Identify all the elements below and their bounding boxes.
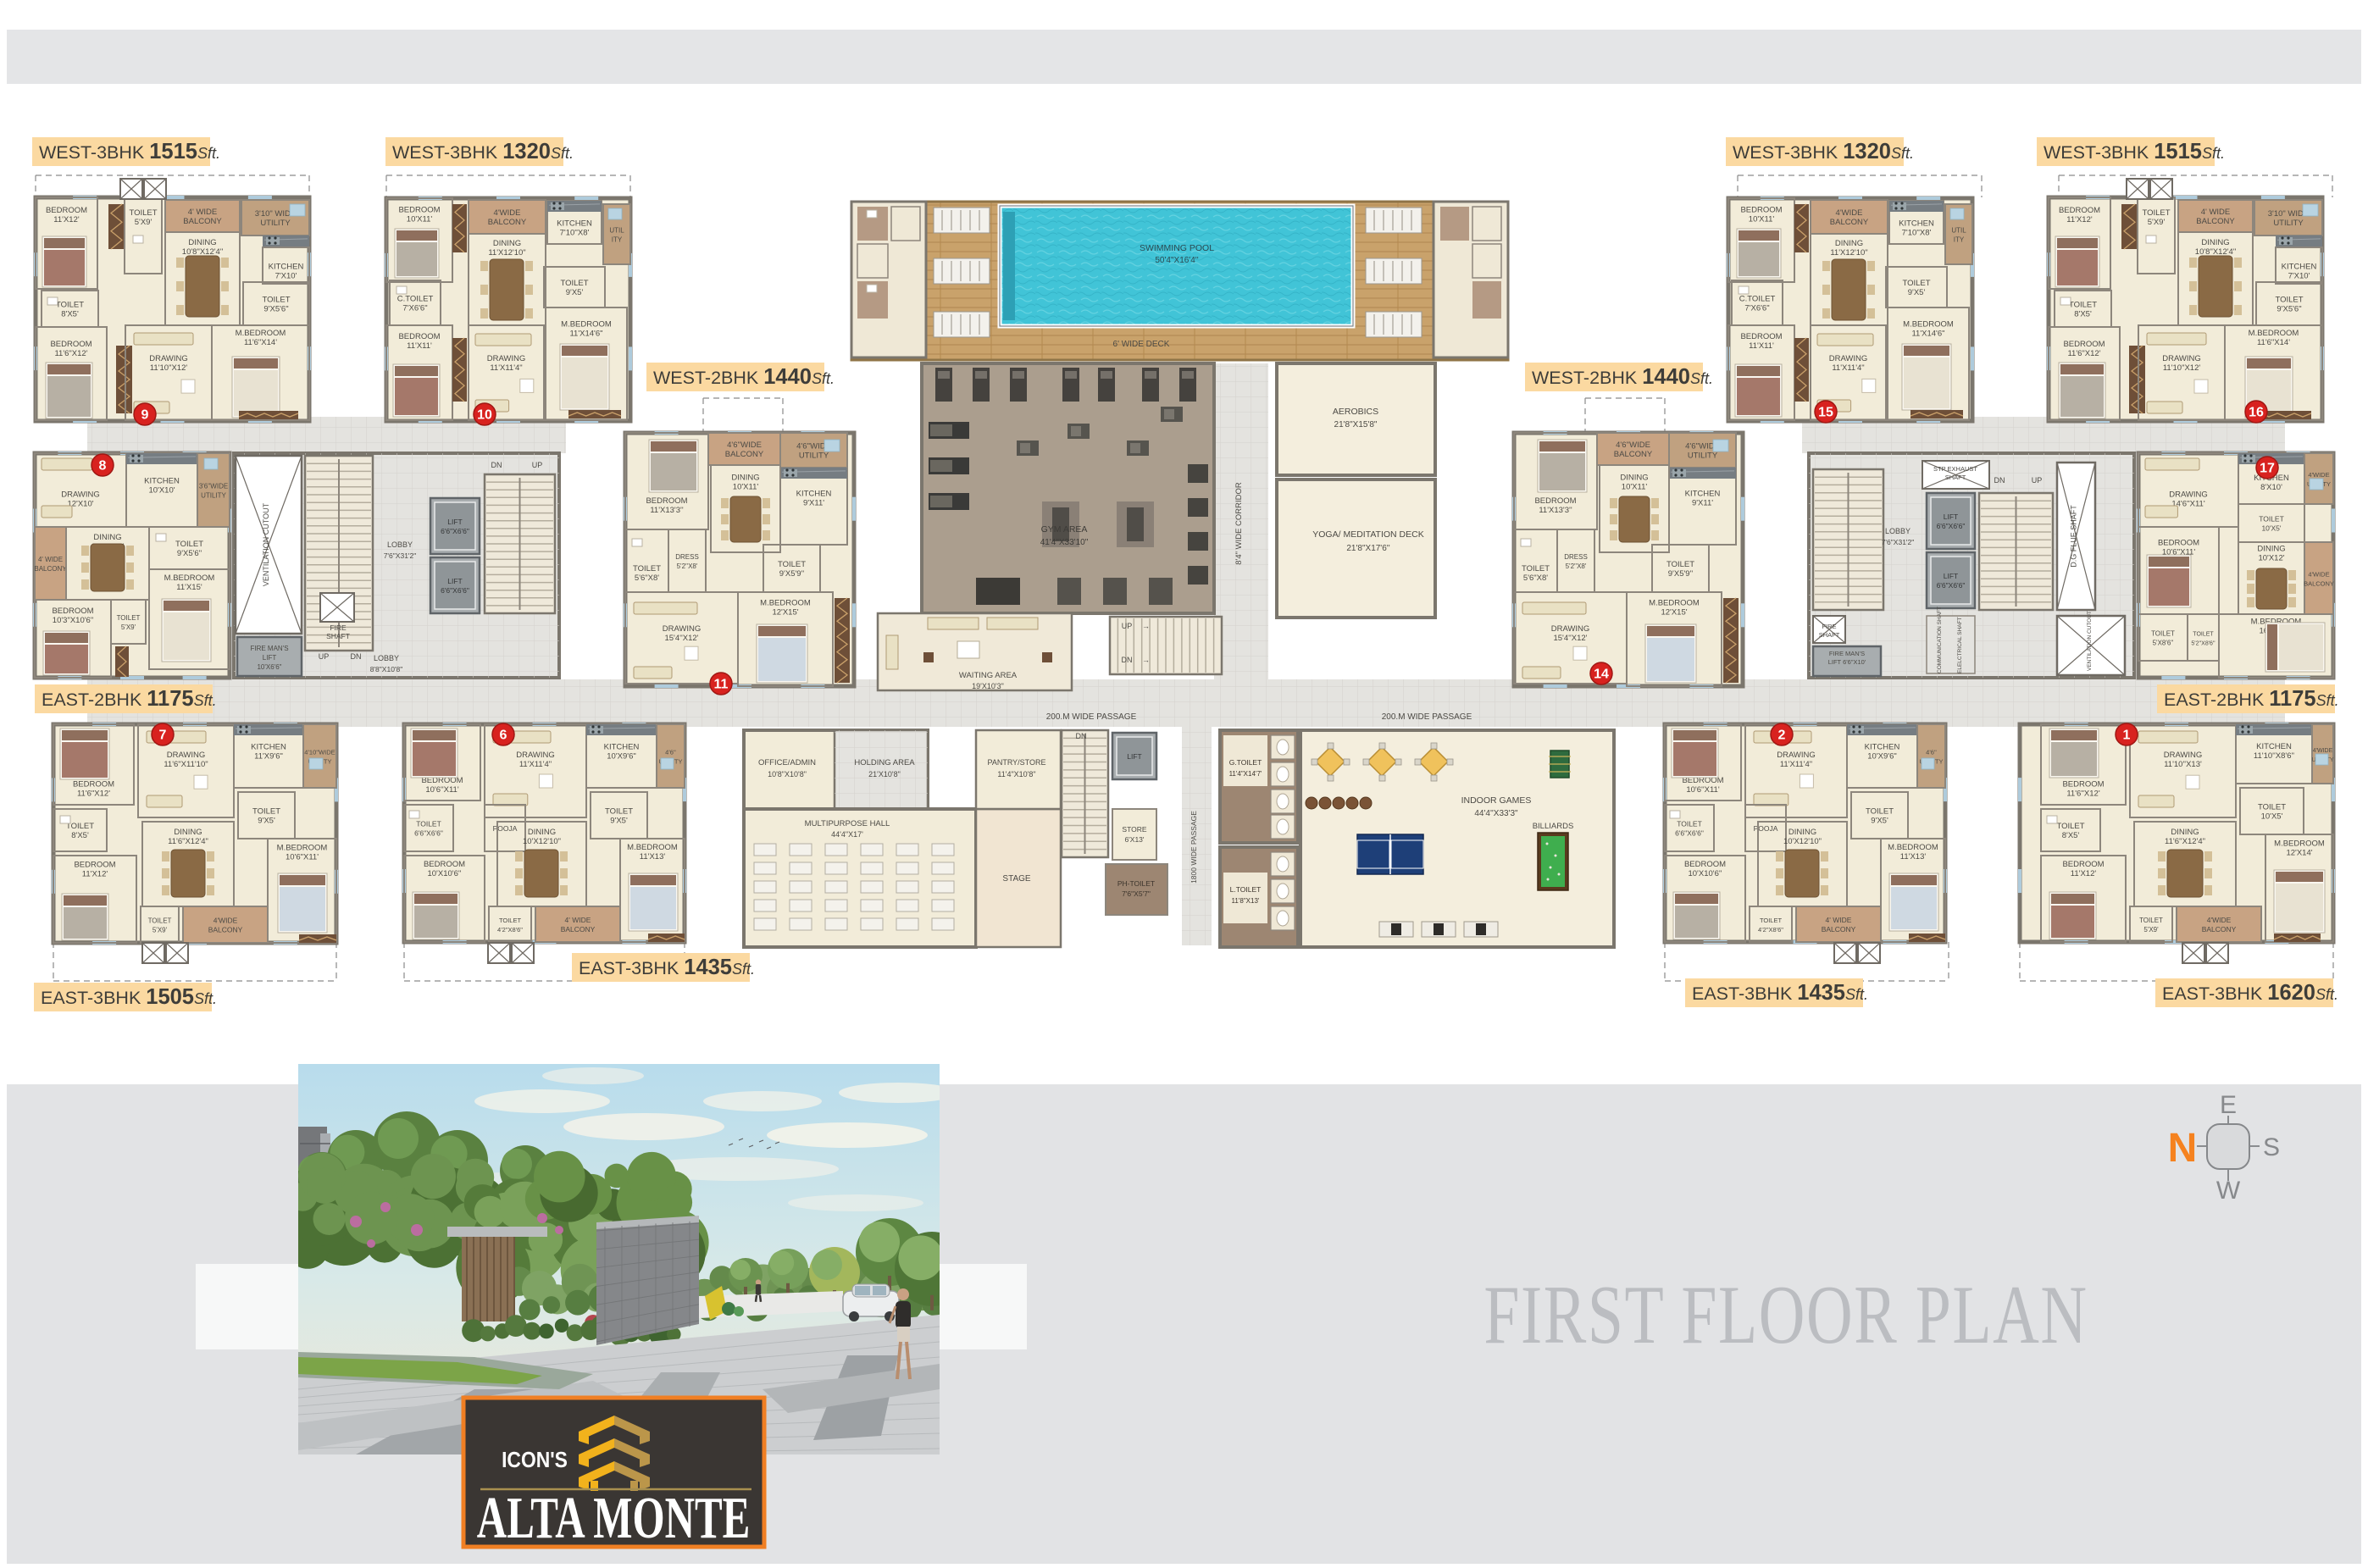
svg-text:L.TOILET: L.TOILET <box>1230 885 1262 894</box>
svg-text:TOILET: TOILET <box>605 807 633 817</box>
svg-text:DRAWING: DRAWING <box>167 751 206 760</box>
svg-text:11: 11 <box>714 678 729 692</box>
svg-text:10'8"X10'8": 10'8"X10'8" <box>768 770 807 778</box>
svg-text:AEROBICS: AEROBICS <box>1333 407 1378 417</box>
svg-text:KITCHEN: KITCHEN <box>2282 263 2317 272</box>
svg-text:44'4''X33'3": 44'4''X33'3" <box>1474 809 1518 818</box>
svg-text:10'X12'10": 10'X12'10" <box>1783 837 1822 846</box>
svg-text:BEDROOM: BEDROOM <box>398 332 440 341</box>
svg-text:M.BEDROOM: M.BEDROOM <box>1903 320 1954 330</box>
svg-text:LOBBY: LOBBY <box>1885 527 1910 535</box>
svg-text:BEDROOM: BEDROOM <box>398 206 440 215</box>
svg-text:10'3"X10'6": 10'3"X10'6" <box>53 616 93 625</box>
svg-text:DN: DN <box>1076 732 1087 740</box>
svg-text:KITCHEN: KITCHEN <box>1685 490 1721 499</box>
svg-text:10'6''X11': 10'6''X11' <box>1686 785 1719 795</box>
svg-text:11'6"X11'10": 11'6"X11'10" <box>164 760 208 769</box>
svg-text:DRAWING: DRAWING <box>1829 354 1868 363</box>
svg-text:11'6"X12'4": 11'6"X12'4" <box>168 837 208 846</box>
svg-text:10'6"X11': 10'6"X11' <box>286 853 319 862</box>
svg-text:DRAWING: DRAWING <box>516 751 555 760</box>
svg-text:GYM AREA: GYM AREA <box>1041 524 1088 535</box>
svg-text:DN: DN <box>351 652 362 661</box>
svg-text:BALCONY: BALCONY <box>2304 580 2334 588</box>
svg-text:M.BEDROOM: M.BEDROOM <box>760 599 811 608</box>
svg-text:7'10''X8': 7'10''X8' <box>560 229 590 238</box>
svg-text:BEDROOM: BEDROOM <box>424 860 465 869</box>
svg-text:4' WIDE: 4' WIDE <box>2201 208 2231 217</box>
svg-text:TOILET: TOILET <box>2193 632 2214 638</box>
svg-text:M.BEDROOM: M.BEDROOM <box>1649 599 1700 608</box>
svg-text:EAST-2BHK 1175Sft.: EAST-2BHK 1175Sft. <box>2164 687 2339 711</box>
svg-text:BALCONY: BALCONY <box>725 450 764 459</box>
svg-text:KITCHEN: KITCHEN <box>269 263 304 272</box>
svg-text:W: W <box>2216 1177 2241 1205</box>
svg-text:C.TOILET: C.TOILET <box>1739 295 1776 304</box>
svg-text:15'4''X12': 15'4''X12' <box>664 634 698 643</box>
svg-text:E: E <box>2220 1091 2237 1119</box>
svg-text:10'X11': 10'X11' <box>1749 215 1775 224</box>
svg-text:6'6"X6'6": 6'6"X6'6" <box>1937 522 1966 530</box>
svg-text:DRAWING: DRAWING <box>61 490 100 500</box>
svg-text:TOILET: TOILET <box>56 301 84 310</box>
svg-text:WEST-3BHK 1320Sft.: WEST-3BHK 1320Sft. <box>392 140 574 163</box>
svg-text:M.BEDROOM: M.BEDROOM <box>1888 843 1938 852</box>
svg-text:6'6"X6'6": 6'6"X6'6" <box>1675 829 1704 838</box>
svg-text:UP: UP <box>532 461 543 469</box>
svg-text:TOILET: TOILET <box>2056 822 2084 831</box>
svg-text:WAITING AREA: WAITING AREA <box>959 671 1018 680</box>
svg-text:11'X12': 11'X12' <box>2071 869 2097 878</box>
svg-text:4'6'': 4'6'' <box>1926 749 1937 756</box>
svg-text:TOILET: TOILET <box>2142 208 2170 218</box>
svg-text:10'X10'6'': 10'X10'6'' <box>427 869 461 878</box>
svg-text:→: → <box>1142 622 1150 630</box>
svg-text:KITCHEN: KITCHEN <box>557 219 592 229</box>
svg-text:7'X6'6": 7'X6'6" <box>1744 304 1769 313</box>
svg-text:10'X10': 10'X10' <box>148 486 175 496</box>
svg-text:11'10''X8'6'': 11'10''X8'6'' <box>2254 751 2294 761</box>
svg-text:ITY: ITY <box>612 236 623 244</box>
svg-text:9'X5': 9'X5' <box>1871 817 1888 826</box>
svg-text:200.M WIDE PASSAGE: 200.M WIDE PASSAGE <box>1382 712 1472 722</box>
svg-text:10'X11': 10'X11' <box>1622 483 1648 492</box>
svg-text:11'X13'3'': 11'X13'3'' <box>650 506 683 515</box>
svg-text:4'WIDE: 4'WIDE <box>214 917 238 925</box>
svg-text:TOILET: TOILET <box>1666 560 1694 569</box>
svg-text:UTILITY: UTILITY <box>799 452 829 461</box>
svg-text:12'X15': 12'X15' <box>1661 608 1687 618</box>
svg-text:6'6"X6'6": 6'6"X6'6" <box>1937 581 1966 590</box>
svg-text:UTILITY: UTILITY <box>2273 219 2304 228</box>
svg-text:11'X11': 11'X11' <box>407 341 432 351</box>
svg-text:DRAWING: DRAWING <box>663 624 702 634</box>
svg-text:4'6'': 4'6'' <box>665 749 676 756</box>
svg-text:5'X9': 5'X9' <box>2143 926 2159 934</box>
svg-text:8'X5': 8'X5' <box>2062 831 2080 840</box>
svg-text:G.TOILET: G.TOILET <box>1229 758 1262 767</box>
svg-text:PH-TOILET: PH-TOILET <box>1117 879 1155 888</box>
svg-text:TOILET: TOILET <box>129 208 157 218</box>
svg-text:TOILET: TOILET <box>175 540 203 549</box>
svg-text:4'6''WIDE: 4'6''WIDE <box>1616 440 1650 450</box>
svg-text:LIFT: LIFT <box>447 518 462 526</box>
svg-text:LIFT: LIFT <box>447 577 462 585</box>
svg-text:TOILET: TOILET <box>416 820 441 828</box>
svg-text:10'X10'6'': 10'X10'6'' <box>1688 869 1722 878</box>
svg-text:LIFT 6'6"X10': LIFT 6'6"X10' <box>1828 658 1866 666</box>
svg-text:11'X11'4": 11'X11'4" <box>1832 363 1864 373</box>
svg-text:DRESS: DRESS <box>1564 553 1588 561</box>
svg-text:6'6"X6'6": 6'6"X6'6" <box>441 527 469 535</box>
svg-text:21'X10'8": 21'X10'8" <box>868 770 901 778</box>
svg-text:10'X12'10": 10'X12'10" <box>523 837 561 846</box>
svg-text:9'X5': 9'X5' <box>1908 288 1926 297</box>
svg-text:UTILITY: UTILITY <box>1688 452 1718 461</box>
svg-text:11'10"X12': 11'10"X12' <box>2163 363 2201 373</box>
svg-text:LOBBY: LOBBY <box>387 540 413 549</box>
svg-text:8: 8 <box>99 459 107 474</box>
svg-text:TOILET: TOILET <box>2151 630 2175 638</box>
svg-text:14: 14 <box>1594 668 1609 682</box>
svg-text:FIRE MAN'S: FIRE MAN'S <box>250 645 288 652</box>
svg-text:9: 9 <box>141 408 149 423</box>
svg-text:44'4"X17': 44'4"X17' <box>831 830 863 839</box>
svg-text:11'X12': 11'X12' <box>53 215 80 224</box>
svg-text:11'X12'10": 11'X12'10" <box>488 248 525 258</box>
svg-text:9'X5'6": 9'X5'6" <box>263 305 288 314</box>
svg-text:5'6"X8': 5'6"X8' <box>635 573 659 583</box>
svg-text:STAGE: STAGE <box>1002 874 1030 884</box>
svg-text:BALCONY: BALCONY <box>183 217 222 226</box>
svg-text:DN: DN <box>491 461 502 469</box>
svg-text:200.M WIDE PASSAGE: 200.M WIDE PASSAGE <box>1046 712 1137 722</box>
svg-text:M.BEDROOM: M.BEDROOM <box>561 320 612 330</box>
svg-text:DINING: DINING <box>93 533 121 542</box>
svg-text:4'WIDE: 4'WIDE <box>494 208 521 218</box>
svg-text:SWIMMING POOL: SWIMMING POOL <box>1140 243 1214 253</box>
svg-text:9'X5'6": 9'X5'6" <box>2276 305 2301 314</box>
svg-text:TOILET: TOILET <box>560 279 588 288</box>
svg-text:KITCHEN: KITCHEN <box>251 743 286 752</box>
svg-text:11'X11'4": 11'X11'4" <box>490 363 522 373</box>
svg-text:KITCHEN: KITCHEN <box>796 490 832 499</box>
svg-text:KITCHEN: KITCHEN <box>2256 742 2292 751</box>
svg-text:BEDROOM: BEDROOM <box>73 780 114 790</box>
svg-text:N: N <box>2168 1126 2198 1171</box>
svg-text:BEDROOM: BEDROOM <box>2062 780 2104 790</box>
svg-text:11'4"X14'7': 11'4"X14'7' <box>1229 770 1262 778</box>
svg-text:KITCHEN: KITCHEN <box>1865 743 1900 752</box>
svg-text:21'8"X17'6'': 21'8"X17'6'' <box>1346 544 1389 553</box>
svg-text:6'6"X6'6": 6'6"X6'6" <box>441 586 469 595</box>
svg-text:9'X11': 9'X11' <box>1692 499 1713 508</box>
svg-text:OFFICE/ADMIN: OFFICE/ADMIN <box>758 758 816 767</box>
svg-text:M.BEDROOM: M.BEDROOM <box>277 844 328 853</box>
svg-text:11'X15': 11'X15' <box>176 583 202 592</box>
svg-text:BALCONY: BALCONY <box>1830 218 1869 227</box>
svg-text:BALCONY: BALCONY <box>2202 925 2237 934</box>
svg-text:4'WIDE: 4'WIDE <box>2308 571 2329 579</box>
svg-text:DRAWING: DRAWING <box>487 354 526 363</box>
svg-text:DRESS: DRESS <box>675 553 699 561</box>
svg-text:EAST-3BHK 1435Sft.: EAST-3BHK 1435Sft. <box>579 956 755 979</box>
svg-text:10'X6'6": 10'X6'6" <box>257 663 281 671</box>
svg-text:5'2''X8': 5'2''X8' <box>677 562 698 570</box>
svg-text:FIRE MAN'S: FIRE MAN'S <box>1829 650 1865 657</box>
svg-text:8'X5': 8'X5' <box>71 831 89 840</box>
svg-text:11'6"X14': 11'6"X14' <box>2257 338 2290 347</box>
svg-text:DN: DN <box>1122 656 1133 664</box>
svg-text:M.BEDROOM: M.BEDROOM <box>627 843 678 852</box>
svg-text:DINING: DINING <box>1835 239 1863 248</box>
svg-text:ELELCTRICAL SHAFT: ELELCTRICAL SHAFT <box>1957 617 1963 673</box>
svg-text:LIFT: LIFT <box>1944 572 1958 580</box>
svg-text:1: 1 <box>2123 729 2131 743</box>
svg-text:9'X5'9'': 9'X5'9'' <box>1668 569 1694 579</box>
svg-text:10'8"X12'4": 10'8"X12'4" <box>182 247 223 257</box>
svg-text:SHAFT: SHAFT <box>326 632 350 640</box>
svg-text:11'X12': 11'X12' <box>82 870 108 879</box>
svg-text:8'4" WIDE CORRIDOR: 8'4" WIDE CORRIDOR <box>1234 482 1244 565</box>
svg-text:10'X11': 10'X11' <box>733 483 759 492</box>
svg-text:7'6"X31'2": 7'6"X31'2" <box>384 551 417 560</box>
svg-text:INDOOR GAMES: INDOOR GAMES <box>1461 795 1532 806</box>
svg-text:LIFT: LIFT <box>1127 752 1141 761</box>
svg-text:PANTRY/STORE: PANTRY/STORE <box>987 758 1045 767</box>
svg-text:LOBBY: LOBBY <box>374 654 399 662</box>
svg-text:FIRST FLOOR PLAN: FIRST FLOOR PLAN <box>1483 1268 2088 1361</box>
svg-text:11'6"X14': 11'6"X14' <box>244 338 277 347</box>
svg-text:4' WIDE: 4' WIDE <box>38 556 63 563</box>
svg-text:12'X14': 12'X14' <box>2286 849 2312 858</box>
svg-text:FIRE: FIRE <box>330 623 347 632</box>
svg-text:10'X5': 10'X5' <box>2261 812 2283 822</box>
svg-text:BEDROOM: BEDROOM <box>2059 206 2100 215</box>
svg-text:11'10"X12': 11'10"X12' <box>150 363 188 373</box>
svg-text:4' WIDE: 4' WIDE <box>565 916 591 924</box>
svg-text:TOILET: TOILET <box>2069 301 2097 310</box>
svg-text:TOILET: TOILET <box>778 560 806 569</box>
svg-text:D.G FLUE SHAFT: D.G FLUE SHAFT <box>2070 505 2078 568</box>
svg-text:21'8"X15'8": 21'8"X15'8" <box>1334 420 1378 429</box>
svg-text:11'X11'4": 11'X11'4" <box>1780 760 1812 769</box>
svg-text:WEST-3BHK 1515Sft.: WEST-3BHK 1515Sft. <box>2044 140 2225 163</box>
svg-text:TOILET: TOILET <box>148 917 172 925</box>
svg-text:M.BEDROOM: M.BEDROOM <box>236 329 286 338</box>
svg-text:11'6"X12': 11'6"X12' <box>2067 349 2100 358</box>
svg-text:M.BEDROOM: M.BEDROOM <box>2274 839 2325 849</box>
svg-text:WEST-2BHK 1440Sft.: WEST-2BHK 1440Sft. <box>653 365 835 389</box>
svg-text:4' WIDE: 4' WIDE <box>188 208 218 217</box>
svg-text:BALCONY: BALCONY <box>1822 925 1856 934</box>
svg-text:17: 17 <box>2260 462 2275 476</box>
svg-text:9'X5': 9'X5' <box>566 288 584 297</box>
svg-text:DINING: DINING <box>493 239 521 248</box>
svg-text:11'X13'3'': 11'X13'3'' <box>1539 506 1572 515</box>
svg-text:TOILET: TOILET <box>117 614 141 622</box>
svg-text:5'X9': 5'X9' <box>121 623 136 631</box>
svg-text:DINING: DINING <box>2257 545 2285 554</box>
svg-text:TOILET: TOILET <box>262 296 290 305</box>
svg-text:11'6''X12': 11'6''X12' <box>2066 790 2099 799</box>
svg-text:VENTILATION CUTOUT: VENTILATION CUTOUT <box>2087 611 2093 671</box>
svg-text:DINING: DINING <box>188 238 216 247</box>
svg-text:ICON'S: ICON'S <box>502 1449 568 1473</box>
svg-text:6' WIDE DECK: 6' WIDE DECK <box>1113 340 1170 349</box>
svg-text:9'X5': 9'X5' <box>610 817 628 826</box>
svg-text:DRAWING: DRAWING <box>2164 751 2203 760</box>
svg-text:7'X6'6": 7'X6'6" <box>402 304 427 313</box>
svg-text:BALCONY: BALCONY <box>208 926 243 934</box>
svg-text:4'2"X8'6": 4'2"X8'6" <box>497 926 523 934</box>
svg-text:6'X13': 6'X13' <box>1124 835 1144 844</box>
svg-text:HOLDING AREA: HOLDING AREA <box>854 758 915 767</box>
svg-text:KITCHEN: KITCHEN <box>604 743 640 752</box>
svg-text:C.TOILET: C.TOILET <box>397 295 434 304</box>
svg-text:DINING: DINING <box>1788 828 1816 837</box>
svg-text:UP: UP <box>2032 476 2043 485</box>
svg-text:DN: DN <box>1994 476 2005 485</box>
svg-text:11'X11': 11'X11' <box>1749 341 1774 351</box>
svg-text:UTIL: UTIL <box>609 227 624 235</box>
svg-text:EAST-2BHK 1175Sft.: EAST-2BHK 1175Sft. <box>42 687 217 711</box>
svg-text:MULTIPURPOSE HALL: MULTIPURPOSE HALL <box>805 819 890 828</box>
svg-text:11'10''X13': 11'10''X13' <box>2164 760 2202 769</box>
svg-text:SHAFT: SHAFT <box>1945 474 1966 481</box>
svg-text:10'8"X12'4": 10'8"X12'4" <box>2195 247 2236 257</box>
svg-text:50'4"X16'4'': 50'4"X16'4'' <box>1155 256 1198 265</box>
svg-text:BALCONY: BALCONY <box>34 565 67 573</box>
svg-text:BEDROOM: BEDROOM <box>50 340 92 349</box>
svg-text:BILLIARDS: BILLIARDS <box>1533 822 1574 831</box>
svg-text:5'X8'6'': 5'X8'6'' <box>2153 640 2174 647</box>
svg-text:VENTILATION CUTOUT: VENTILATION CUTOUT <box>262 502 270 586</box>
svg-text:7'X10': 7'X10' <box>2288 272 2310 281</box>
svg-text:UTILITY: UTILITY <box>260 219 291 228</box>
svg-text:TOILET: TOILET <box>2258 803 2286 812</box>
svg-text:DRAWING: DRAWING <box>2169 490 2208 500</box>
svg-text:UTILITY: UTILITY <box>201 492 226 500</box>
svg-text:7'6"X31'2": 7'6"X31'2" <box>1882 538 1915 546</box>
svg-text:BEDROOM: BEDROOM <box>1534 496 1576 506</box>
svg-text:TOILET: TOILET <box>2275 296 2303 305</box>
svg-text:DRAWING: DRAWING <box>1551 624 1590 634</box>
svg-text:11'X12': 11'X12' <box>2066 215 2093 224</box>
svg-text:COMMUNICATION SHAFT: COMMUNICATION SHAFT <box>1937 607 1943 673</box>
svg-text:KITCHEN: KITCHEN <box>144 477 180 486</box>
svg-text:10'X12': 10'X12' <box>2258 554 2284 563</box>
svg-text:4'6''WIDE: 4'6''WIDE <box>727 440 762 450</box>
svg-text:TOILET: TOILET <box>252 807 280 817</box>
svg-text:POOJA: POOJA <box>493 824 518 833</box>
svg-text:15: 15 <box>1818 406 1833 420</box>
svg-text:EAST-3BHK 1435Sft.: EAST-3BHK 1435Sft. <box>1692 981 1868 1005</box>
svg-text:15'4''X12': 15'4''X12' <box>1553 634 1587 643</box>
svg-text:5'2''X8'6'': 5'2''X8'6'' <box>2191 641 2215 647</box>
svg-text:BEDROOM: BEDROOM <box>52 607 93 616</box>
svg-text:9'X5': 9'X5' <box>258 817 275 826</box>
svg-text:BEDROOM: BEDROOM <box>1740 206 1782 215</box>
svg-text:11'6"X12': 11'6"X12' <box>77 790 110 799</box>
svg-text:9'X5'9'': 9'X5'9'' <box>779 569 805 579</box>
svg-text:LIFT: LIFT <box>263 654 277 662</box>
svg-text:FIRE: FIRE <box>1822 623 1836 630</box>
svg-text:5'X9': 5'X9' <box>153 927 168 934</box>
svg-text:6'6"X6'6": 6'6"X6'6" <box>414 829 443 838</box>
svg-text:BALCONY: BALCONY <box>488 218 527 227</box>
svg-text:4'WIDE: 4'WIDE <box>2308 471 2329 479</box>
svg-text:4'WIDE: 4'WIDE <box>2313 748 2333 754</box>
svg-text:4'2"X8'6": 4'2"X8'6" <box>1758 926 1783 934</box>
svg-text:7'X10': 7'X10' <box>275 272 297 281</box>
svg-text:11'X14'6": 11'X14'6" <box>1911 330 1944 339</box>
svg-text:TOILET: TOILET <box>1902 279 1930 288</box>
svg-text:DINING: DINING <box>1620 474 1648 483</box>
svg-text:S: S <box>2263 1133 2280 1161</box>
svg-text:DINING: DINING <box>2171 828 2199 837</box>
svg-text:TOILET: TOILET <box>1677 820 1702 828</box>
svg-text:→: → <box>1142 656 1150 664</box>
svg-text:5'X9': 5'X9' <box>2148 218 2166 227</box>
svg-text:8'X10': 8'X10' <box>2260 483 2282 492</box>
svg-text:11'6''X12'4": 11'6''X12'4" <box>2165 837 2205 846</box>
svg-text:M.BEDROOM: M.BEDROOM <box>164 573 215 583</box>
svg-text:BEDROOM: BEDROOM <box>1740 332 1782 341</box>
svg-text:BEDROOM: BEDROOM <box>46 206 87 215</box>
svg-text:11'8"X13': 11'8"X13' <box>1232 897 1260 905</box>
svg-text:WEST-3BHK 1320Sft.: WEST-3BHK 1320Sft. <box>1733 140 1914 163</box>
svg-text:BEDROOM: BEDROOM <box>646 496 687 506</box>
svg-text:BEDROOM: BEDROOM <box>2062 860 2104 869</box>
svg-text:SHAFT: SHAFT <box>1819 631 1840 639</box>
svg-text:4'10''WIDE: 4'10''WIDE <box>304 749 335 756</box>
svg-text:DINING: DINING <box>174 828 202 837</box>
svg-text:10'6''X11': 10'6''X11' <box>425 785 458 795</box>
svg-text:BEDROOM: BEDROOM <box>2063 340 2105 349</box>
svg-text:5'6"X8': 5'6"X8' <box>1523 573 1548 583</box>
svg-text:8'X5': 8'X5' <box>61 310 79 319</box>
svg-text:11'X13': 11'X13' <box>640 852 666 862</box>
svg-text:BALCONY: BALCONY <box>561 925 596 934</box>
svg-text:BEDROOM: BEDROOM <box>1684 860 1726 869</box>
svg-text:POOJA: POOJA <box>1754 824 1778 833</box>
svg-text:12'X15': 12'X15' <box>772 608 798 618</box>
svg-text:10'X9'6": 10'X9'6" <box>1867 752 1896 762</box>
svg-text:2: 2 <box>1778 729 1786 743</box>
svg-text:9'X5'6": 9'X5'6" <box>177 549 202 558</box>
svg-text:11'4"X10'8": 11'4"X10'8" <box>997 770 1035 778</box>
svg-text:BALCONY: BALCONY <box>2196 217 2235 226</box>
svg-text:M.BEDROOM: M.BEDROOM <box>2249 329 2299 338</box>
svg-text:7: 7 <box>159 729 167 743</box>
svg-text:5'2''X8': 5'2''X8' <box>1566 562 1587 570</box>
svg-text:TOILET: TOILET <box>633 564 661 573</box>
svg-text:10'X5': 10'X5' <box>2261 524 2281 533</box>
svg-text:WEST-2BHK 1440Sft.: WEST-2BHK 1440Sft. <box>1532 365 1713 389</box>
svg-text:11'X13': 11'X13' <box>1900 852 1927 862</box>
svg-text:4' WIDE: 4' WIDE <box>1826 916 1852 924</box>
svg-text:4'WIDE: 4'WIDE <box>2207 916 2232 924</box>
svg-text:WEST-3BHK 1515Sft.: WEST-3BHK 1515Sft. <box>39 140 220 163</box>
svg-text:ALTA MONTE: ALTA MONTE <box>477 1486 751 1552</box>
svg-text:7'6"X5'7": 7'6"X5'7" <box>1122 889 1151 898</box>
svg-text:11'X11'4": 11'X11'4" <box>519 760 552 769</box>
svg-text:UTIL: UTIL <box>1951 227 1966 235</box>
svg-text:11'X14'6": 11'X14'6" <box>569 330 602 339</box>
svg-text:7'10''X8': 7'10''X8' <box>1902 229 1932 238</box>
svg-text:41'4"X33'10": 41'4"X33'10" <box>1040 538 1089 547</box>
